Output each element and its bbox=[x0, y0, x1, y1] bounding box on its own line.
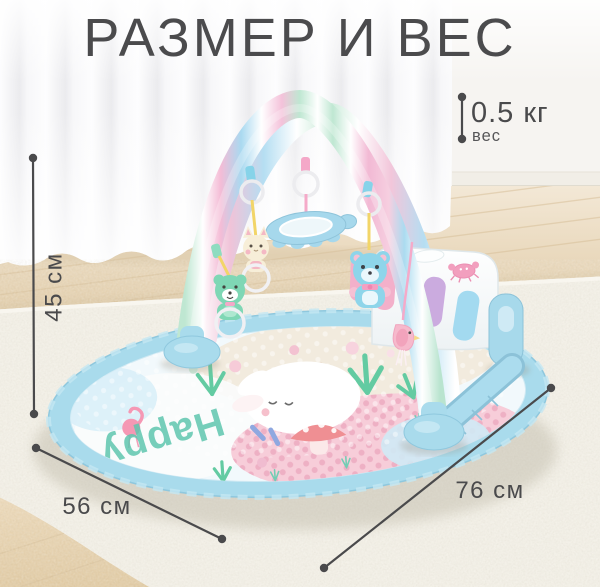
measure-dot bbox=[218, 535, 226, 543]
measure-dot bbox=[32, 444, 40, 452]
scene: Happy bbox=[0, 0, 600, 587]
measure-dot bbox=[30, 410, 38, 418]
measure-dot bbox=[547, 384, 555, 392]
product-size-infographic: Happy bbox=[0, 0, 600, 587]
weight-value: 0.5 кг bbox=[471, 97, 549, 129]
weight-label: вес bbox=[472, 127, 501, 145]
measure-dot bbox=[458, 135, 466, 143]
width-value: 76 см bbox=[455, 477, 524, 504]
depth-value: 56 см bbox=[62, 493, 131, 520]
measure-dot bbox=[458, 93, 466, 101]
height-value: 45 см bbox=[40, 252, 67, 321]
measure-dot bbox=[29, 154, 37, 162]
measure-dot bbox=[320, 564, 328, 572]
page-title: РАЗМЕР И ВЕС bbox=[83, 8, 516, 68]
baseboard bbox=[452, 172, 600, 186]
height-measure-line bbox=[33, 159, 34, 413]
